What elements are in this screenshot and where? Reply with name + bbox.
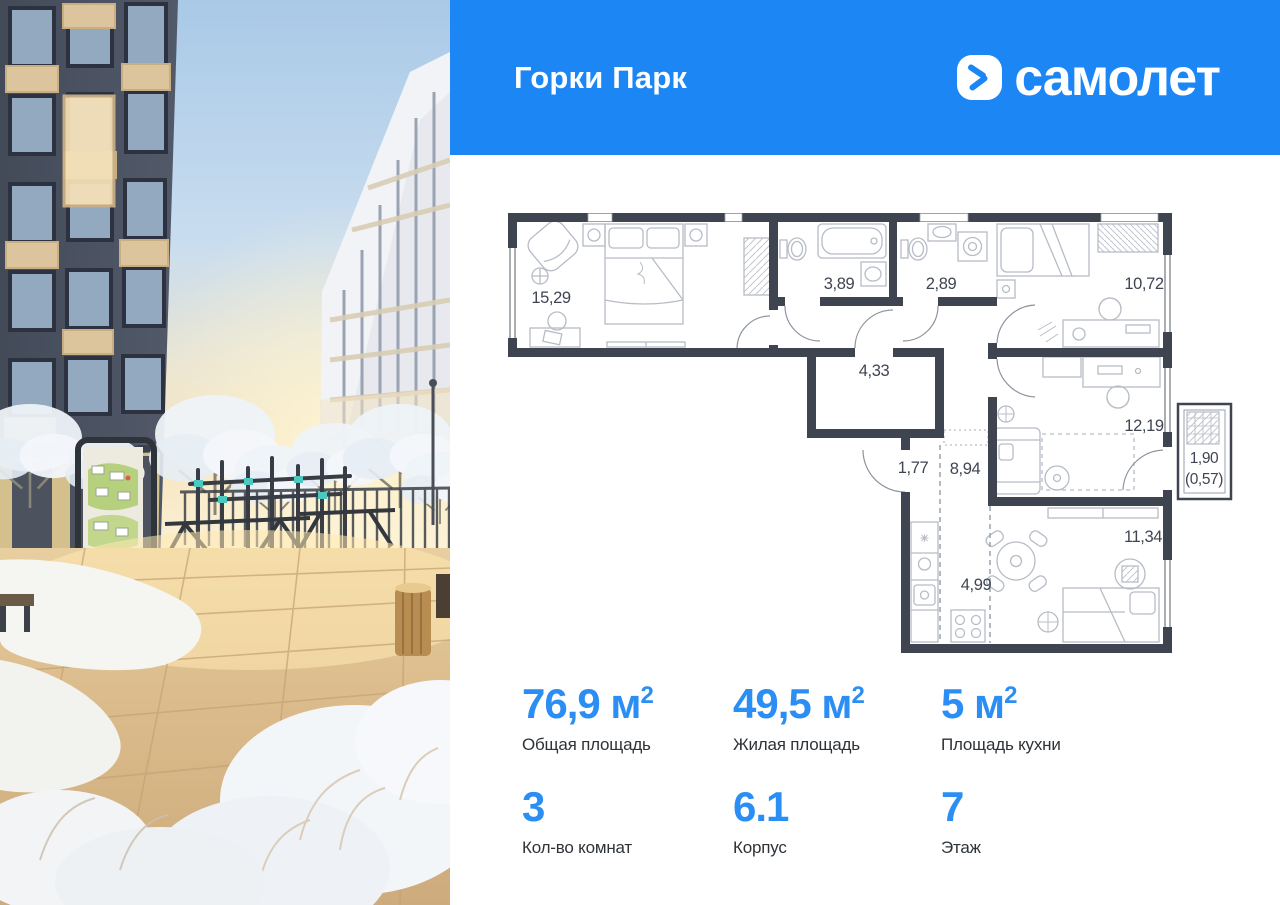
room-area-label-toilet: 2,89 xyxy=(926,275,957,293)
project-photo xyxy=(0,0,450,905)
stat-value: 76,9 м2 xyxy=(522,683,732,725)
stat-value: 6.1 xyxy=(733,786,943,828)
stat-label: Корпус xyxy=(733,838,943,858)
stat-Общая площадь: 76,9 м2Общая площадь xyxy=(522,683,732,755)
samolet-arrow-icon xyxy=(957,55,1002,100)
room-area-label-balcony-coeff: (0,57) xyxy=(1185,471,1223,488)
header: Горки Парк самолет xyxy=(450,0,1280,155)
stat-Корпус: 6.1Корпус xyxy=(733,786,943,858)
stat-value: 49,5 м2 xyxy=(733,683,943,725)
trash-bin xyxy=(395,583,431,656)
room-area-label-bathroom: 3,89 xyxy=(824,275,855,293)
stat-Жилая площадь: 49,5 м2Жилая площадь xyxy=(733,683,943,755)
room-area-label-corridor: 8,94 xyxy=(950,460,981,478)
stat-value: 5 м2 xyxy=(941,683,1151,725)
stat-label: Этаж xyxy=(941,838,1151,858)
room-area-label-bedroom-main: 15,29 xyxy=(531,289,571,307)
stat-label: Площадь кухни xyxy=(941,735,1151,755)
room-area-label-living: 11,34 xyxy=(1124,528,1162,546)
room-area-label-bedroom-2: 10,72 xyxy=(1124,275,1164,293)
room-area-label-room-3: 12,19 xyxy=(1124,417,1164,435)
bench-right xyxy=(436,574,450,618)
project-title: Горки Парк xyxy=(514,60,687,96)
stat-label: Общая площадь xyxy=(522,735,732,755)
stat-value: 3 xyxy=(522,786,732,828)
stat-Этаж: 7Этаж xyxy=(941,786,1151,858)
stat-value: 7 xyxy=(941,786,1151,828)
brand-logo: самолет xyxy=(957,52,1220,104)
listing-card: Горки Парк самолет xyxy=(0,0,1280,905)
room-area-label-balcony: 1,90 xyxy=(1190,450,1219,467)
stat-label: Кол-во комнат xyxy=(522,838,732,858)
room-area-label-wardrobe-room: 4,33 xyxy=(859,362,890,380)
floorplan: 15,293,892,8910,724,331,778,9412,191,90(… xyxy=(450,155,1280,665)
stat-Кол-во комнат: 3Кол-во комнат xyxy=(522,786,732,858)
stat-label: Жилая площадь xyxy=(733,735,943,755)
room-area-label-hall: 1,77 xyxy=(898,459,929,477)
stats-grid: 76,9 м2Общая площадь49,5 м2Жилая площадь… xyxy=(450,660,1280,905)
stat-Площадь кухни: 5 м2Площадь кухни xyxy=(941,683,1151,755)
room-area-label-kitchen: 4,99 xyxy=(961,576,992,594)
brand-name: самолет xyxy=(1014,52,1220,104)
